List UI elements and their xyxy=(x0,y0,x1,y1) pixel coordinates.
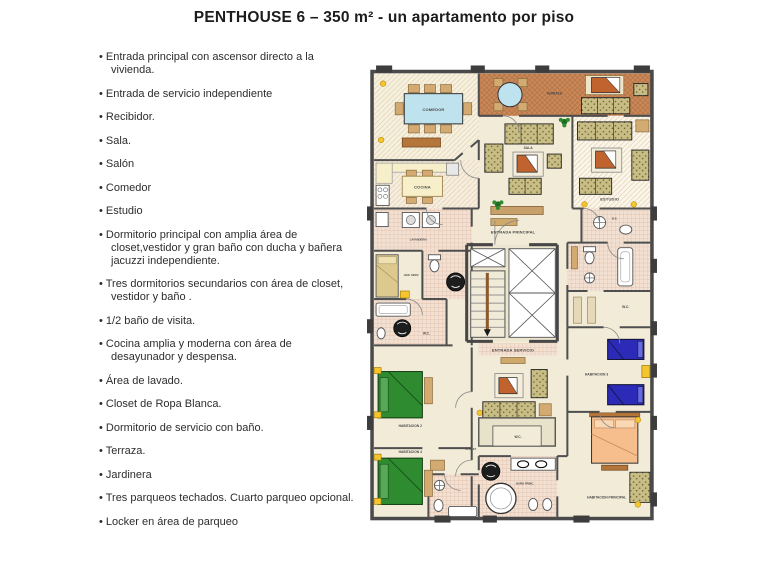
doormat xyxy=(501,357,525,363)
list-item: Terraza. xyxy=(99,445,355,458)
list-item: Dormitorio principal con amplia área de … xyxy=(99,229,355,268)
armchair-icon xyxy=(485,144,503,172)
stairs-icon xyxy=(471,271,505,337)
room-label-entrada-servicio: ENTRADA SERVICIO xyxy=(492,347,534,352)
sideboard xyxy=(402,138,440,147)
list-item: Recibidor. xyxy=(99,111,355,124)
room-label-cocina: COCINA xyxy=(414,184,431,189)
nightstand xyxy=(400,291,409,298)
floor-plan-drawing: COMEDOR TERRAZA SALA ESTUDIO COCINA LAVA… xyxy=(366,57,660,523)
toilet-icon xyxy=(620,225,632,234)
room-label-lavanderia: LAVANDERIA xyxy=(410,238,427,242)
page-title: PENTHOUSE 6 – 350 m² - un apartamento po… xyxy=(0,9,768,27)
toilet-icon xyxy=(377,328,385,339)
bathtub-icon xyxy=(618,248,633,286)
sofa-icon xyxy=(483,402,535,420)
room-label-comedor: COMEDOR xyxy=(422,107,444,112)
list-item: Estudio xyxy=(99,205,355,218)
sofa-icon xyxy=(577,122,631,140)
toilet-icon xyxy=(430,260,439,272)
lamp-icon xyxy=(635,417,641,423)
terrace-table xyxy=(498,83,522,107)
lamp-icon xyxy=(380,81,386,87)
sofa-icon xyxy=(505,124,553,144)
bathtub-icon xyxy=(376,303,410,316)
room-label-habitacion4: HABITACION 4 xyxy=(399,450,422,454)
list-item: Área de lavado. xyxy=(99,375,355,388)
lamp-icon xyxy=(631,202,637,208)
list-item: Cocina amplia y moderna con área de desa… xyxy=(99,338,355,364)
armchair-icon xyxy=(547,154,561,168)
room-label-closet: CLOSET xyxy=(465,447,476,451)
toilet-icon xyxy=(585,252,594,264)
bench xyxy=(602,465,628,470)
room-label-habitacion2: HABITACION 2 xyxy=(399,424,422,428)
list-item: Entrada principal con ascensor directo a… xyxy=(99,51,355,77)
list-item: 1/2 baño de visita. xyxy=(99,315,355,328)
room-label-terraza: TERRAZA xyxy=(546,92,562,96)
lamp-icon xyxy=(582,202,588,208)
nightstand xyxy=(642,366,650,378)
list-item: Tres dormitorios secundarios con área de… xyxy=(99,278,355,304)
list-item: Salón xyxy=(99,158,355,171)
room-label-estudio: ESTUDIO xyxy=(600,196,619,201)
armchair-icon xyxy=(531,370,547,398)
list-item: Entrada de servicio independiente xyxy=(99,88,355,101)
list-item: Jardinera xyxy=(99,469,355,482)
feature-list: Entrada principal con ascensor directo a… xyxy=(99,51,355,539)
toilet-icon xyxy=(529,498,538,510)
list-item: Locker en área de parqueo xyxy=(99,516,355,529)
room-label-sala: SALA xyxy=(524,146,534,150)
bidet-icon xyxy=(543,498,552,510)
lamp-icon xyxy=(477,410,483,416)
sofa-icon xyxy=(581,98,629,114)
room-label-bs: B.S. xyxy=(612,217,618,221)
bathtub-icon xyxy=(449,506,477,516)
list-item: Dormitorio de servicio con baño. xyxy=(99,422,355,435)
lamp-icon xyxy=(378,137,384,143)
room-label-wc-serv: W.C. xyxy=(423,331,430,335)
room-label-habitacion3: HABITACION 3 xyxy=(585,373,608,377)
slide: PENTHOUSE 6 – 350 m² - un apartamento po… xyxy=(0,0,768,576)
armchair-icon xyxy=(632,150,649,180)
list-item: Tres parqueos techados. Cuarto parqueo o… xyxy=(99,492,355,505)
room-label-wc-right: W.C. xyxy=(622,305,629,309)
room-label-wc-center: W.C. xyxy=(514,435,521,439)
list-item: Closet de Ropa Blanca. xyxy=(99,398,355,411)
dresser xyxy=(630,472,650,502)
list-item: Comedor xyxy=(99,182,355,195)
room-label-habitacion-principal: HABITACION PRINCIPAL xyxy=(587,495,626,499)
armchair-icon xyxy=(634,84,648,96)
floor-plan: COMEDOR TERRAZA SALA ESTUDIO COCINA LAVA… xyxy=(366,57,660,523)
closet-wc-center xyxy=(479,418,556,446)
list-item: Sala. xyxy=(99,135,355,148)
lamp-icon xyxy=(635,502,641,508)
toilet-icon xyxy=(434,499,443,511)
room-lavanderia xyxy=(376,212,439,227)
room-label-entrada-principal: ENTRADA PRINCIPAL xyxy=(491,230,536,235)
room-label-hab-serv: HAB. SERV. xyxy=(404,273,419,277)
